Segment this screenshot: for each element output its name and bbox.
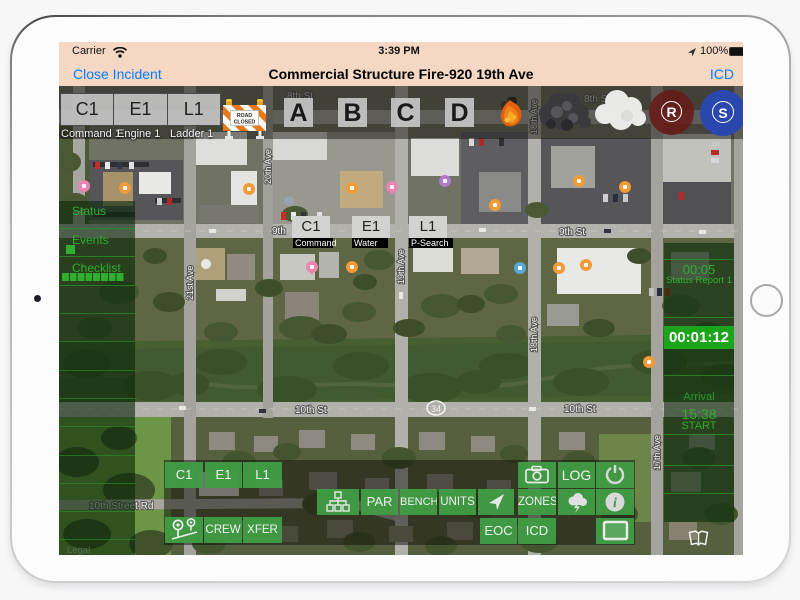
svg-text:9th: 9th [272,226,286,237]
svg-text:21st Ave: 21st Ave [185,266,195,300]
svg-text:10th St: 10th St [564,404,596,415]
svg-text:10th St: 10th St [295,405,327,416]
svg-text:17th Ave: 17th Ave [652,435,662,470]
svg-text:19th Ave: 19th Ave [396,249,406,284]
svg-text:ROAD: ROAD [237,113,253,119]
svg-text:34: 34 [431,404,441,414]
svg-text:20th Ave: 20th Ave [263,149,273,184]
svg-text:9th St: 9th St [559,227,585,238]
svg-text:i: i [613,496,617,511]
svg-text:18th Ave: 18th Ave [529,317,539,352]
svg-text:CLOSED: CLOSED [234,120,256,126]
